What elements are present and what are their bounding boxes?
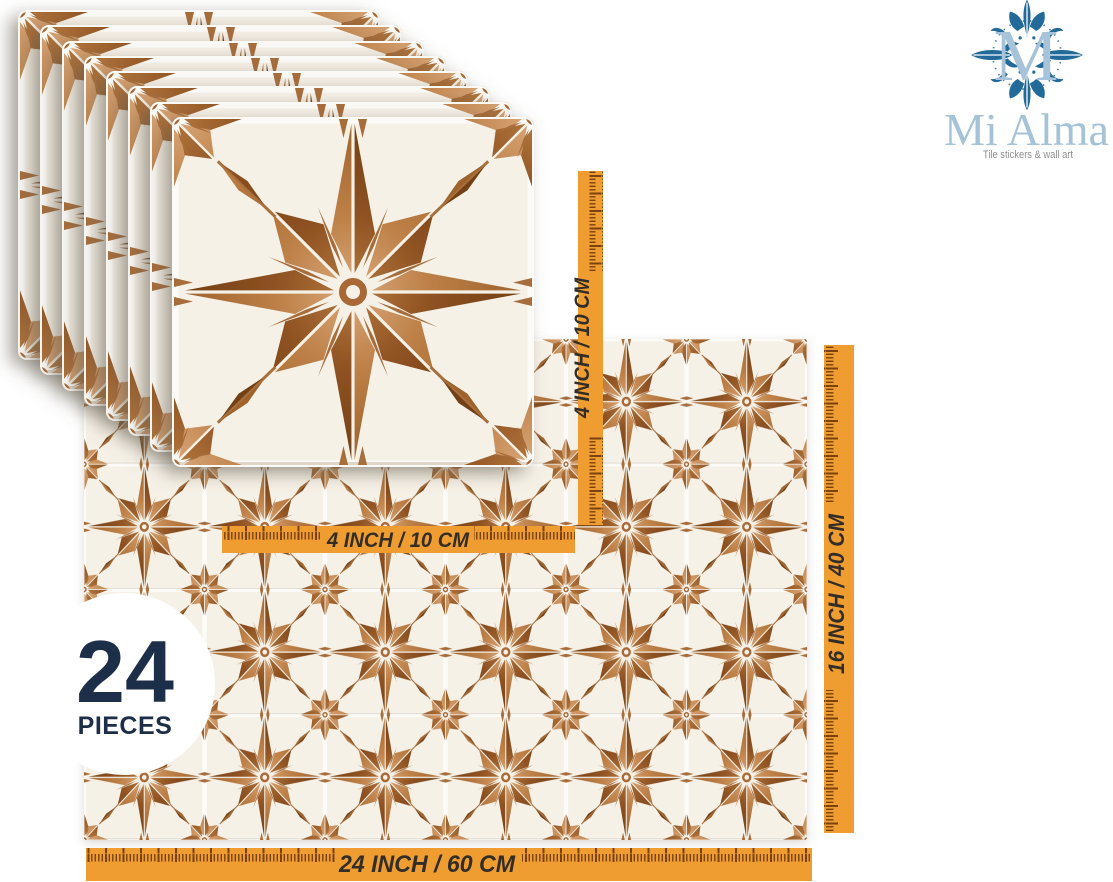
svg-text:4 INCH / 10 CM: 4 INCH / 10 CM: [326, 529, 469, 552]
svg-text:24: 24: [76, 622, 174, 721]
svg-text:16 INCH / 40 CM: 16 INCH / 40 CM: [824, 513, 849, 674]
svg-text:24 INCH / 60 CM: 24 INCH / 60 CM: [338, 851, 516, 878]
svg-text:Tile stickers & wall art: Tile stickers & wall art: [983, 149, 1073, 161]
svg-text:4 INCH / 10 CM: 4 INCH / 10 CM: [571, 278, 594, 419]
svg-text:Mi Alma: Mi Alma: [944, 104, 1109, 155]
svg-text:M: M: [994, 15, 1059, 96]
svg-text:PIECES: PIECES: [78, 712, 173, 740]
